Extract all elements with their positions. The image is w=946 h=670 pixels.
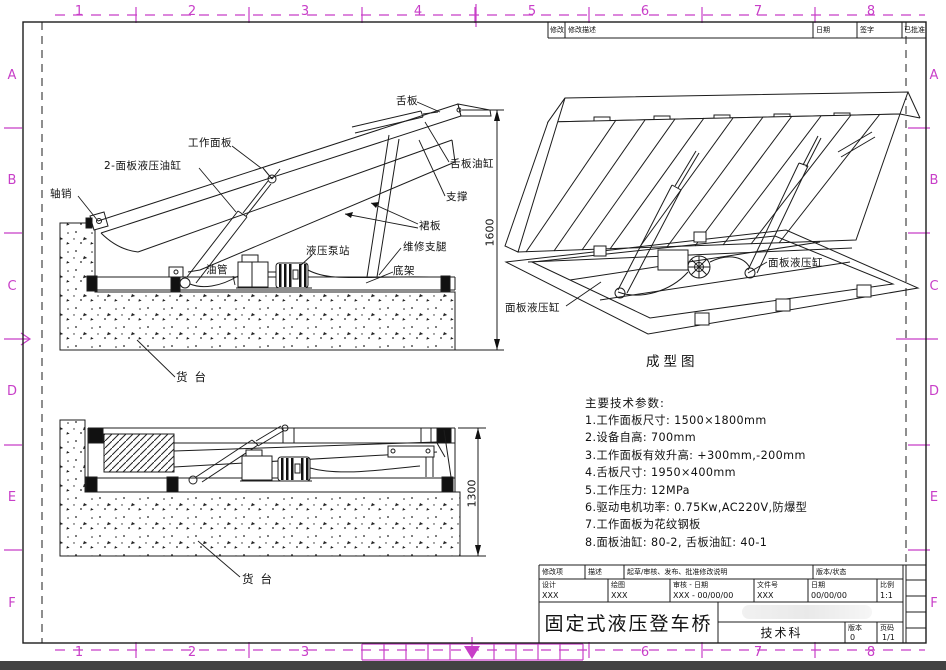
spec-item: 2.设备自高: 700mm	[585, 429, 915, 446]
zone-left-c: C	[2, 279, 22, 294]
titleblock-version-value: 0	[850, 633, 855, 642]
titleblock-sheet-label: 页码	[880, 624, 894, 632]
spec-item: 5.工作压力: 12MPa	[585, 482, 915, 499]
drawing-sheet: 1 2 3 4 5 6 7 8 1 2 3 6 7 8 A B C D E F …	[0, 0, 946, 670]
zone-top-1: 1	[69, 4, 89, 19]
dimension-1300: 1300	[466, 472, 479, 516]
titleblock-desc-label: 描述	[588, 568, 602, 576]
drawing-canvas	[0, 0, 946, 670]
zone-bottom-2: 2	[182, 645, 202, 660]
spec-list: 主要技术参数: 1.工作面板尺寸: 1500×1800mm 2.设备自高: 70…	[585, 394, 915, 551]
titleblock-sheet-value: 1/1	[882, 633, 895, 642]
label-dock-upper: 货台	[176, 369, 213, 385]
zone-left-e: E	[2, 490, 22, 505]
label-maintenance-leg: 维修支腿	[403, 239, 447, 254]
view-isometric	[505, 92, 920, 334]
zone-bottom-7: 7	[748, 645, 768, 660]
spec-item: 1.工作面板尺寸: 1500×1800mm	[585, 412, 915, 429]
titleblock-date-label: 日期	[811, 581, 825, 589]
spec-item: 7.工作面板为花纹钢板	[585, 516, 915, 533]
label-panel-cylinder-left: 面板液压缸	[505, 300, 560, 315]
zone-bottom-6: 6	[635, 645, 655, 660]
label-panel-cylinder-right: 面板液压缸	[768, 255, 823, 270]
zone-right-b: B	[924, 173, 944, 188]
titleblock-scale-value: 1:1	[880, 591, 893, 600]
zone-top-6: 6	[635, 4, 655, 19]
label-work-panel: 工作面板	[188, 135, 232, 150]
zone-right-c: C	[924, 279, 944, 294]
revision-col-approved: 已批准	[904, 26, 925, 34]
label-panel-cylinder: 2-面板液压油缸	[104, 158, 181, 173]
zone-right-f: F	[924, 596, 944, 611]
titleblock-draft-value: XXX	[611, 591, 627, 600]
zone-left-f: F	[2, 596, 22, 611]
view-side-stored	[60, 420, 486, 556]
titleblock-date-value: 00/00/00	[811, 591, 847, 600]
zone-right-d: D	[924, 384, 944, 399]
revision-col-mod: 修改	[550, 26, 564, 34]
titleblock-check-label: 审核 - 日期	[673, 581, 708, 589]
label-support: 支撑	[446, 189, 468, 204]
zone-right-a: A	[924, 68, 944, 83]
titleblock-draft-label: 绘图	[611, 581, 625, 589]
titleblock-version-state-label: 版本/状态	[816, 568, 846, 576]
watermark-smudge	[742, 605, 872, 619]
titleblock-version-label: 版本	[848, 624, 862, 632]
label-oil-pipe: 油管	[206, 262, 228, 277]
label-lip-cylinder: 舌板油缸	[450, 156, 494, 171]
spec-item: 8.面板油缸: 80-2, 舌板油缸: 40-1	[585, 534, 915, 551]
spec-title: 主要技术参数:	[585, 394, 915, 412]
label-axle-pin: 轴销	[50, 186, 72, 201]
zone-bottom-1: 1	[69, 645, 89, 660]
zone-bottom-3: 3	[295, 645, 315, 660]
caption-formed-view: 成型图	[646, 350, 699, 370]
zone-top-3: 3	[295, 4, 315, 19]
titleblock-file-value: XXX	[757, 591, 773, 600]
department: 技术科	[718, 622, 845, 643]
revision-col-sign: 签字	[860, 26, 874, 34]
zone-top-8: 8	[861, 4, 881, 19]
label-lip-plate: 舌板	[396, 93, 418, 108]
titleblock-approval-label: 起草/审核、发布、批准修改说明	[627, 568, 727, 576]
label-skirt: 裙板	[419, 218, 441, 233]
zone-left-d: D	[2, 384, 22, 399]
spec-item: 3.工作面板有效升高: +300mm,-200mm	[585, 447, 915, 464]
zone-top-7: 7	[748, 4, 768, 19]
zone-left-a: A	[2, 68, 22, 83]
titleblock-file-label: 文件号	[757, 581, 778, 589]
zone-top-5: 5	[522, 4, 542, 19]
spec-item: 6.驱动电机功率: 0.75Kw,AC220V,防爆型	[585, 499, 915, 516]
label-pump-station: 液压泵站	[306, 243, 350, 258]
titleblock-scale-label: 比例	[880, 581, 894, 589]
titleblock-check-value: XXX - 00/00/00	[673, 591, 733, 600]
zone-right-e: E	[924, 490, 944, 505]
zone-top-2: 2	[182, 4, 202, 19]
revision-col-desc: 修改描述	[568, 26, 596, 34]
titleblock-rev-item-label: 修改项	[542, 568, 563, 576]
titleblock-design-value: XXX	[542, 591, 558, 600]
label-base-frame: 底架	[393, 263, 415, 278]
drawing-title: 固定式液压登车桥	[539, 602, 718, 643]
dimension-1600: 1600	[484, 211, 497, 255]
titleblock-design-label: 设计	[542, 581, 556, 589]
label-dock-lower: 货台	[242, 571, 279, 587]
spec-item: 4.舌板尺寸: 1950×400mm	[585, 464, 915, 481]
revision-col-date: 日期	[816, 26, 830, 34]
zone-left-b: B	[2, 173, 22, 188]
bottom-bar	[0, 661, 946, 670]
zone-bottom-8: 8	[861, 645, 881, 660]
zone-top-4: 4	[408, 4, 428, 19]
